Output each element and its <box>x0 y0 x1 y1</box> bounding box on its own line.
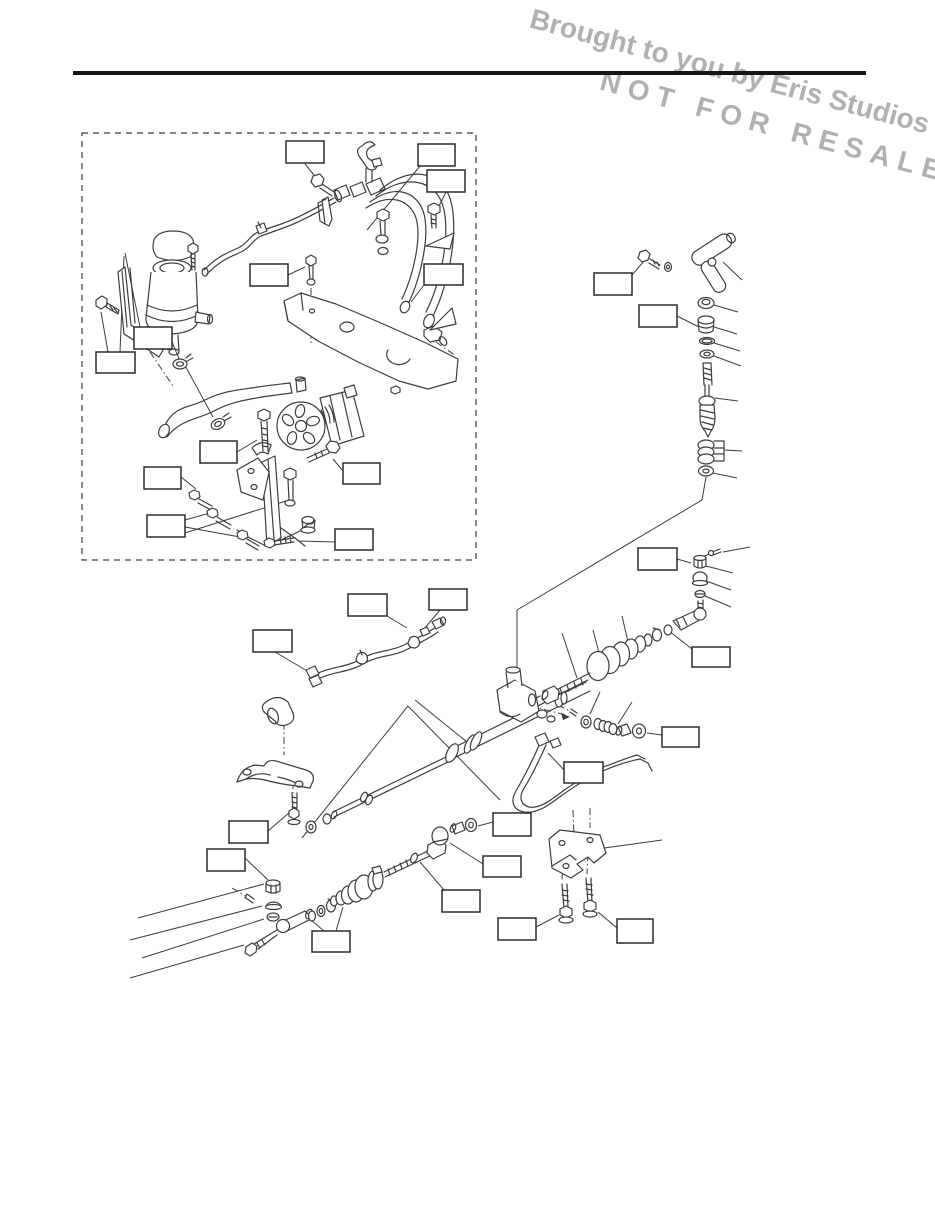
callout-box <box>594 273 632 295</box>
callout-box <box>493 813 531 836</box>
leader-line <box>677 559 691 563</box>
leader-line <box>714 356 741 366</box>
steering-pipes <box>306 617 446 687</box>
rack-clamp-bracket <box>237 761 313 788</box>
callout-box <box>312 931 350 952</box>
leader-line <box>138 884 264 918</box>
callout-box <box>692 647 730 667</box>
callout-box <box>429 589 467 610</box>
leader-line <box>714 327 737 334</box>
leader-line <box>632 261 644 275</box>
callout-box <box>442 890 480 912</box>
leader-line <box>669 631 692 649</box>
callout-box <box>200 441 237 463</box>
clamp-bolt-small <box>306 255 316 285</box>
leader-line <box>268 812 290 831</box>
callout-box <box>662 727 699 747</box>
leader-line <box>706 581 731 590</box>
leader-line <box>245 858 268 880</box>
leader-line <box>450 843 483 864</box>
leader-line <box>715 398 738 401</box>
callout-box <box>144 467 181 489</box>
leader-line <box>647 733 662 735</box>
leader-line <box>420 862 444 890</box>
callout-box <box>286 141 324 163</box>
callout-box <box>483 856 521 877</box>
leader-line <box>548 753 565 771</box>
leader-line <box>714 343 740 351</box>
leader-line <box>618 702 632 724</box>
callout-box <box>207 849 245 871</box>
callout-box <box>343 463 380 484</box>
leader-line <box>598 912 617 928</box>
leader-line <box>302 706 408 838</box>
leader-line <box>387 616 407 628</box>
clamp-bracket-bolt <box>288 793 300 825</box>
leader-line <box>185 527 240 537</box>
rack-tube-housing <box>443 667 590 764</box>
mount-grommet <box>262 698 293 726</box>
leader-line <box>723 262 742 280</box>
leader-line <box>702 477 706 500</box>
leader-line <box>478 822 493 826</box>
leader-line <box>604 840 662 848</box>
leader-line <box>130 906 262 940</box>
hose-bolt-left <box>311 174 334 196</box>
callout-box <box>639 305 677 327</box>
leader-line <box>275 652 309 672</box>
callout-box <box>427 170 465 192</box>
leader-line <box>181 477 196 489</box>
leader-line <box>705 596 731 607</box>
leader-line <box>677 316 699 327</box>
hose-bolt-center <box>376 209 389 255</box>
suction-hose <box>157 383 292 439</box>
manual-page: { "page": { "background": "#ffffff", "ru… <box>0 0 935 1210</box>
support-bracket-plate <box>549 830 606 878</box>
callout-box <box>498 918 536 940</box>
callout-box <box>617 919 653 943</box>
leader-line <box>182 360 213 417</box>
callout-box <box>134 327 172 349</box>
leader-line <box>298 541 335 542</box>
callout-box <box>335 529 373 550</box>
leader-line <box>562 633 577 678</box>
callout-box <box>424 264 463 285</box>
leader-line <box>536 915 559 927</box>
dash-dot-line <box>150 352 173 386</box>
callout-box <box>253 630 292 652</box>
callout-box <box>147 515 185 537</box>
leader-line <box>333 459 343 471</box>
bellows-boot-right <box>536 634 652 704</box>
rack-guide-parts <box>570 709 646 738</box>
callout-box <box>250 264 288 286</box>
exploded-parts-diagram <box>0 0 935 1210</box>
leader-line <box>706 566 733 573</box>
bracket-plate-bolts <box>559 878 597 923</box>
leader-line <box>714 305 738 312</box>
leader-line <box>288 267 305 275</box>
leader-line <box>723 547 750 552</box>
leader-line <box>724 450 742 451</box>
pointer-arrows <box>426 233 570 720</box>
callout-box <box>564 762 603 783</box>
leader-line <box>713 473 737 478</box>
leader-line-layer <box>101 164 750 978</box>
callout-box <box>96 352 135 373</box>
crossmember <box>284 293 458 394</box>
leader-line <box>590 692 600 714</box>
hose-bolt-right <box>428 203 440 228</box>
callout-box <box>348 594 387 616</box>
rack-shaft <box>306 757 448 833</box>
reservoir-bolt-left <box>96 296 119 314</box>
pinion-shaft-parts <box>638 231 737 476</box>
callout-box <box>638 548 677 570</box>
leader-line <box>185 513 210 520</box>
callout-box <box>418 144 455 166</box>
callout-box <box>229 821 268 843</box>
leader-line <box>336 907 343 931</box>
leader-line <box>101 312 108 352</box>
leader-line <box>130 945 244 978</box>
power-steering-pump <box>277 377 364 450</box>
leader-line <box>311 920 324 931</box>
